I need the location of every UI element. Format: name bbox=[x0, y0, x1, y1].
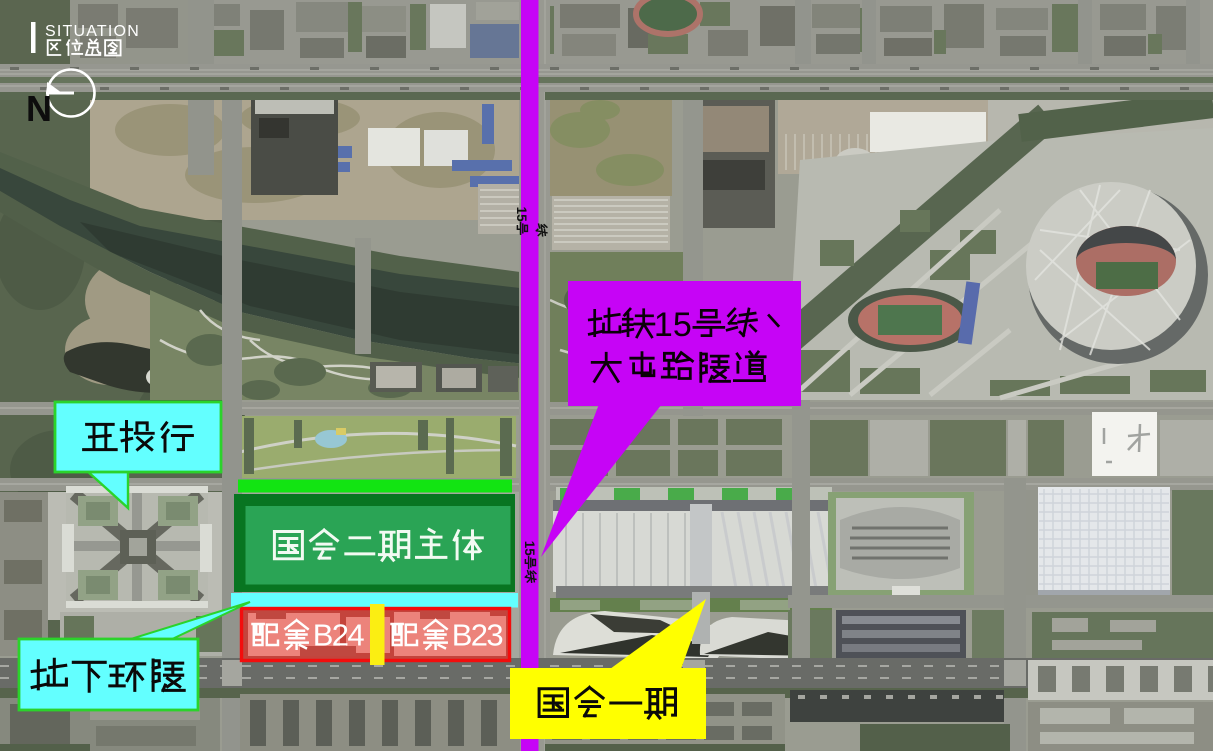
svg-text:B23: B23 bbox=[452, 618, 504, 653]
svg-text:15: 15 bbox=[654, 306, 692, 344]
svg-text:15: 15 bbox=[514, 207, 529, 223]
svg-text:15: 15 bbox=[522, 541, 537, 557]
svg-text:N: N bbox=[26, 88, 52, 129]
svg-text:SITUATION: SITUATION bbox=[45, 23, 140, 40]
svg-text:B24: B24 bbox=[313, 618, 365, 653]
